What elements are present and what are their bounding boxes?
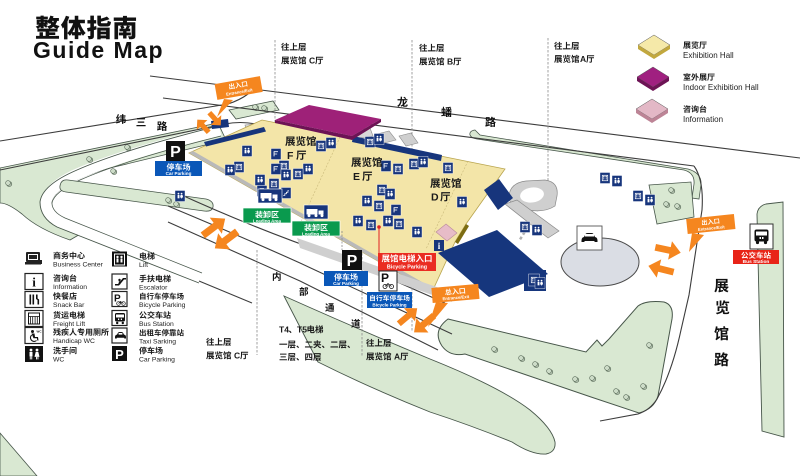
svg-text:i: i [32,275,36,290]
svg-text:Bus Station: Bus Station [139,321,174,328]
svg-text:A: A [394,352,400,362]
svg-text:Loading Area: Loading Area [302,232,330,237]
svg-text:Car Parking: Car Parking [333,281,359,286]
svg-text:P: P [381,271,389,285]
svg-text:B: B [447,57,453,67]
svg-text:Snack Bar: Snack Bar [53,302,85,309]
svg-text:Business Center: Business Center [53,262,104,269]
svg-text:C: C [234,351,240,361]
svg-text:E: E [353,171,360,183]
svg-text:Car Parking: Car Parking [139,357,175,364]
svg-text:Information: Information [53,284,87,291]
svg-text:A: A [580,54,586,64]
svg-text:F: F [287,150,294,162]
svg-text:WC: WC [53,357,64,364]
svg-text:Loading Area: Loading Area [253,219,281,224]
svg-text:P: P [170,144,181,161]
svg-text:Lift: Lift [139,262,148,269]
svg-text:WC: WC [37,330,43,334]
svg-text:T4: T4 [279,325,289,335]
svg-text:Exhibition Hall: Exhibition Hall [683,51,734,60]
svg-text:Freight Lift: Freight Lift [53,321,85,328]
svg-text:Indoor Exhibition Hall: Indoor Exhibition Hall [683,83,759,92]
svg-text:Bus Station: Bus Station [743,259,770,265]
svg-text:P: P [347,253,358,270]
svg-text:Escalator: Escalator [139,285,168,292]
svg-text:P: P [115,347,124,362]
svg-text:Taxi Sarking: Taxi Sarking [139,339,176,346]
svg-text:Information: Information [683,115,723,124]
svg-text:D: D [431,192,439,204]
svg-text:Guide Map: Guide Map [33,37,164,63]
svg-text:Bicycle Parking: Bicycle Parking [372,303,406,308]
svg-text:Bicycle Parking: Bicycle Parking [139,302,186,309]
svg-text:T5: T5 [297,325,307,335]
svg-text:Car Parking: Car Parking [166,171,192,176]
svg-text:Bicycle Parking: Bicycle Parking [387,264,427,270]
svg-text:Handicap WC: Handicap WC [53,338,95,345]
svg-text:C: C [309,56,315,66]
